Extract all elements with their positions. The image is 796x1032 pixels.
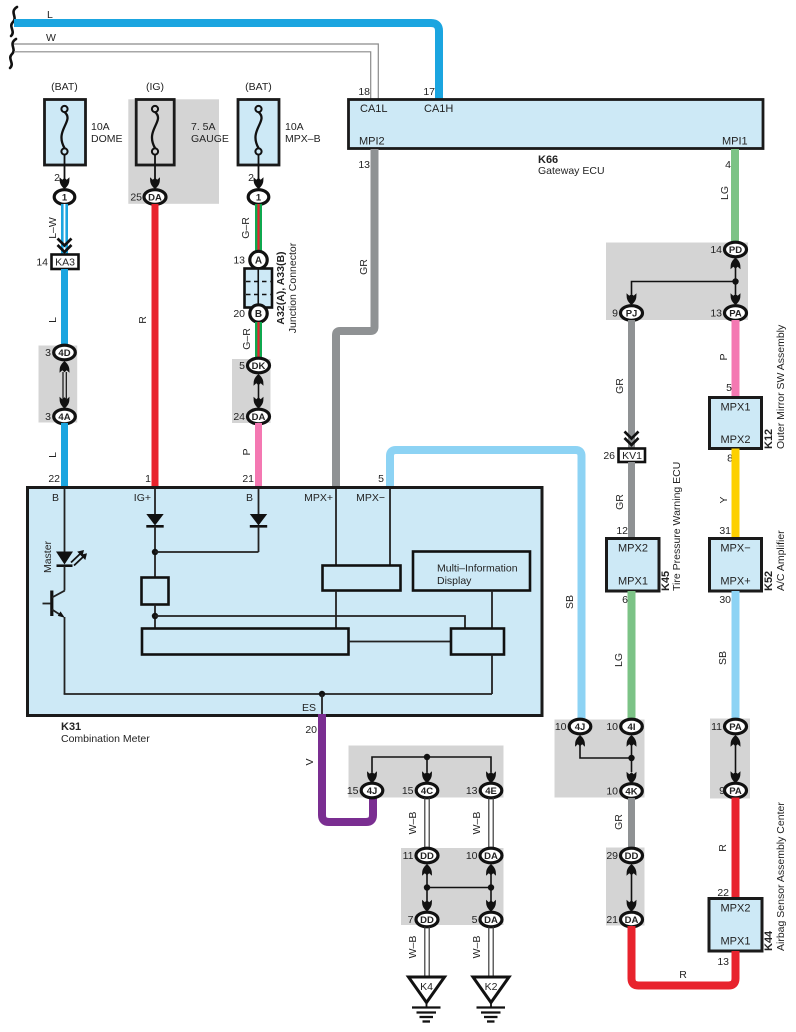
svg-text:15: 15 [347,785,359,797]
svg-text:5: 5 [378,473,384,485]
svg-text:MPX−: MPX− [356,492,385,504]
svg-text:LG: LG [613,653,625,667]
svg-text:V: V [304,758,316,765]
svg-text:7. 5A: 7. 5A [191,121,216,133]
svg-text:G–R: G–R [240,217,252,239]
svg-text:1: 1 [62,193,68,204]
svg-text:24: 24 [233,411,245,423]
svg-text:MPX+: MPX+ [304,492,333,504]
svg-text:13: 13 [233,255,245,267]
svg-text:L: L [47,9,53,21]
svg-text:PA: PA [729,722,742,733]
svg-text:Tire Pressure Warning ECU: Tire Pressure Warning ECU [671,462,683,591]
svg-text:GR: GR [613,814,625,830]
svg-text:4K: 4K [625,787,637,798]
svg-text:25: 25 [130,192,142,204]
svg-text:4J: 4J [367,786,378,797]
svg-text:DD: DD [420,915,434,926]
svg-text:W: W [46,32,56,44]
svg-text:L: L [47,317,59,323]
svg-text:PD: PD [729,245,742,256]
svg-text:10: 10 [606,721,618,733]
svg-text:W–B: W–B [471,936,483,959]
svg-text:11: 11 [711,721,722,733]
svg-text:DOME: DOME [91,133,123,145]
svg-text:B: B [52,492,59,504]
svg-text:4C: 4C [421,786,433,797]
svg-text:L: L [47,452,59,458]
svg-text:13: 13 [466,785,478,797]
svg-text:A/C Amplifier: A/C Amplifier [775,530,787,591]
svg-text:10: 10 [555,721,567,733]
svg-text:(BAT): (BAT) [245,81,272,93]
svg-text:1: 1 [145,473,151,485]
svg-text:14: 14 [710,244,722,256]
svg-text:Airbag Sensor Assembly Center: Airbag Sensor Assembly Center [775,802,787,951]
svg-text:21: 21 [606,914,618,926]
svg-text:MPX1: MPX1 [721,936,751,948]
svg-text:7: 7 [408,914,414,926]
svg-text:B: B [246,492,253,504]
svg-text:MPX–B: MPX–B [285,133,321,145]
svg-text:17: 17 [423,86,435,98]
svg-text:11: 11 [403,850,414,862]
svg-text:B: B [255,309,262,320]
svg-text:W–B: W–B [407,936,419,959]
svg-text:Combination Meter: Combination Meter [61,733,150,745]
svg-text:SB: SB [564,595,576,609]
svg-text:MPX1: MPX1 [721,402,751,414]
svg-text:31: 31 [719,525,731,537]
svg-text:DA: DA [625,915,639,926]
svg-text:4E: 4E [485,786,497,797]
svg-text:P: P [718,353,730,360]
svg-text:5: 5 [726,382,732,394]
svg-text:R: R [717,844,729,852]
svg-text:DD: DD [625,851,639,862]
svg-text:4D: 4D [58,348,70,359]
svg-text:A32(A), A33(B): A32(A), A33(B) [275,251,287,324]
svg-text:29: 29 [606,850,618,862]
svg-text:ES: ES [302,702,316,714]
svg-text:K44: K44 [763,930,775,951]
svg-text:9: 9 [612,308,618,320]
svg-text:DA: DA [148,193,162,204]
svg-text:12: 12 [616,525,628,537]
svg-text:DA: DA [484,851,498,862]
svg-text:15: 15 [402,785,414,797]
svg-text:IG+: IG+ [134,492,151,504]
svg-text:4J: 4J [575,722,586,733]
svg-text:20: 20 [233,308,245,320]
svg-text:9: 9 [719,785,725,797]
svg-text:10A: 10A [285,121,304,133]
svg-text:MPI2: MPI2 [359,136,385,148]
svg-text:LG: LG [719,186,731,200]
svg-text:A: A [255,256,262,267]
svg-text:3: 3 [45,347,51,359]
svg-text:5: 5 [239,360,245,372]
svg-text:13: 13 [717,956,729,968]
svg-text:1: 1 [256,193,262,204]
svg-text:Outer Mirror SW Assembly: Outer Mirror SW Assembly [775,324,787,449]
svg-text:MPX2: MPX2 [721,434,751,446]
svg-text:(IG): (IG) [146,81,164,93]
svg-text:2: 2 [54,172,60,184]
svg-text:18: 18 [358,86,370,98]
svg-text:DA: DA [252,412,266,423]
svg-text:CA1L: CA1L [360,103,388,115]
svg-text:MPX2: MPX2 [618,543,648,555]
svg-text:SB: SB [717,651,729,665]
svg-text:Y: Y [718,496,730,503]
svg-text:MPX−: MPX− [720,543,750,555]
svg-text:R: R [137,316,149,324]
svg-text:14: 14 [36,257,48,269]
svg-text:4A: 4A [58,412,70,423]
svg-text:13: 13 [358,159,370,171]
svg-text:10: 10 [606,786,618,798]
svg-text:GR: GR [614,494,626,510]
svg-text:2: 2 [248,172,254,184]
svg-text:KV1: KV1 [622,450,642,462]
svg-text:21: 21 [242,473,254,485]
svg-text:DA: DA [484,915,498,926]
svg-text:Gateway ECU: Gateway ECU [538,165,605,177]
svg-text:L–W: L–W [47,217,59,239]
svg-text:10: 10 [466,850,478,862]
svg-text:MPX+: MPX+ [720,576,750,588]
svg-text:KA3: KA3 [55,257,75,269]
svg-text:6: 6 [622,594,628,606]
svg-text:13: 13 [710,308,722,320]
svg-text:K2: K2 [485,981,498,993]
svg-text:DD: DD [420,851,434,862]
svg-text:22: 22 [48,473,60,485]
svg-text:5: 5 [472,914,478,926]
svg-text:4: 4 [725,159,731,171]
svg-text:R: R [679,969,687,981]
svg-text:PA: PA [729,309,742,320]
svg-text:30: 30 [719,594,731,606]
svg-text:W–B: W–B [471,812,483,835]
svg-text:CA1H: CA1H [424,103,453,115]
svg-text:MPX2: MPX2 [721,903,751,915]
svg-text:Multi–Information: Multi–Information [437,563,518,575]
svg-text:3: 3 [45,411,51,423]
svg-text:20: 20 [305,724,317,736]
svg-text:W–B: W–B [407,812,419,835]
svg-text:4I: 4I [628,722,636,733]
svg-text:Junction Connector: Junction Connector [287,242,299,333]
svg-text:MPX1: MPX1 [618,576,648,588]
svg-text:GR: GR [614,378,626,394]
svg-text:K4: K4 [420,981,433,993]
svg-text:K52: K52 [763,571,775,591]
svg-text:G–R: G–R [241,328,253,350]
svg-text:26: 26 [603,450,615,462]
svg-text:PA: PA [729,786,742,797]
svg-text:PJ: PJ [626,309,638,320]
svg-text:DK: DK [252,361,266,372]
svg-text:K31: K31 [61,721,81,733]
svg-text:K12: K12 [763,429,775,449]
svg-text:MPI1: MPI1 [722,136,748,148]
svg-text:P: P [241,448,253,455]
svg-text:GAUGE: GAUGE [191,133,229,145]
svg-text:(BAT): (BAT) [51,81,78,93]
svg-text:Master: Master [42,540,54,573]
svg-text:10A: 10A [91,121,110,133]
svg-text:Display: Display [437,575,472,587]
svg-text:GR: GR [358,259,370,275]
